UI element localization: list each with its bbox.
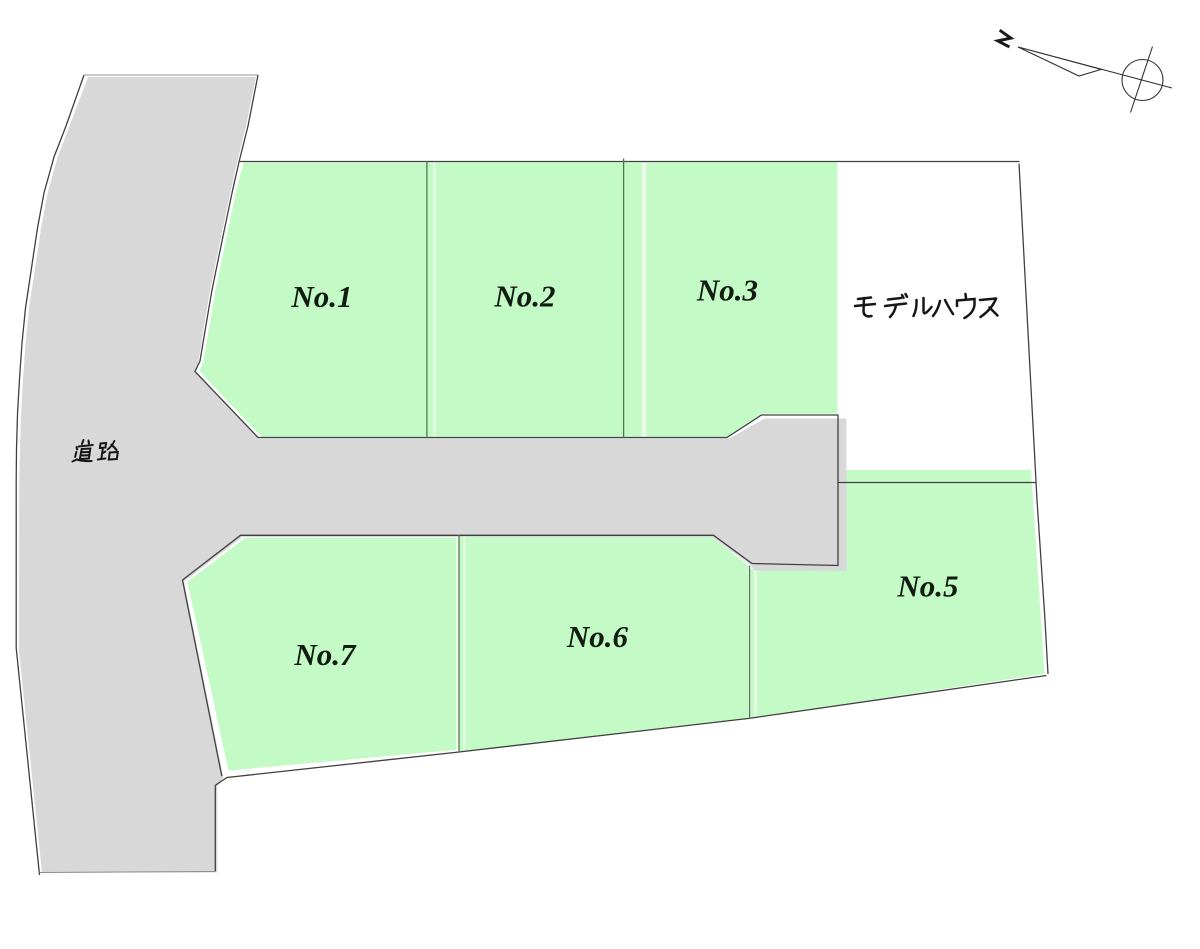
svg-text:No.2: No.2: [493, 279, 555, 314]
svg-text:No.5: No.5: [896, 569, 958, 604]
svg-text:No.1: No.1: [290, 279, 352, 314]
svg-text:No.6: No.6: [566, 619, 629, 654]
svg-text:No.3: No.3: [696, 273, 758, 308]
svg-text:No.7: No.7: [293, 637, 357, 672]
